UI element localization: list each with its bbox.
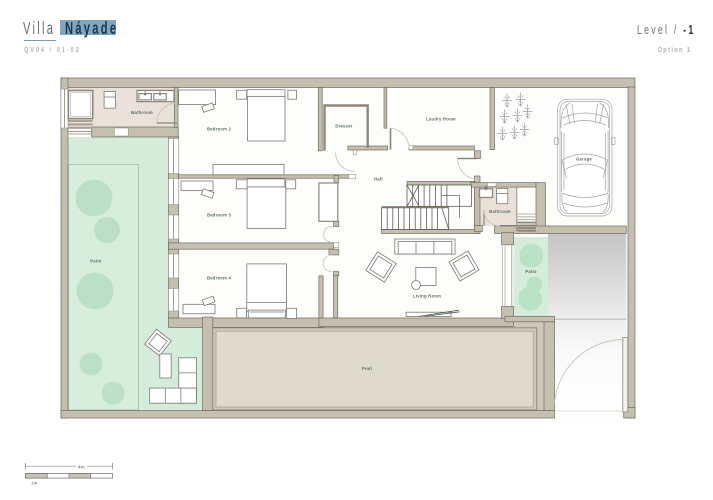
svg-text:1m: 1m bbox=[31, 481, 38, 486]
svg-text:Pool: Pool bbox=[362, 366, 372, 371]
svg-text:Hall: Hall bbox=[374, 177, 383, 182]
svg-text:Patio: Patio bbox=[90, 259, 102, 264]
svg-text:Patio: Patio bbox=[525, 269, 537, 274]
svg-text:4m: 4m bbox=[78, 465, 85, 470]
svg-text:Living Room: Living Room bbox=[413, 294, 441, 299]
svg-text:Bedroom 2: Bedroom 2 bbox=[207, 127, 232, 132]
svg-text:Bathroom: Bathroom bbox=[131, 110, 153, 115]
svg-text:Garage: Garage bbox=[576, 157, 592, 162]
svg-text:Bathroom: Bathroom bbox=[489, 209, 511, 214]
svg-text:Laudry Room: Laudry Room bbox=[426, 117, 456, 122]
svg-text:Bedroom 4: Bedroom 4 bbox=[207, 276, 232, 281]
svg-text:Bedroom 3: Bedroom 3 bbox=[207, 213, 232, 218]
svg-text:Dresser: Dresser bbox=[335, 124, 352, 129]
